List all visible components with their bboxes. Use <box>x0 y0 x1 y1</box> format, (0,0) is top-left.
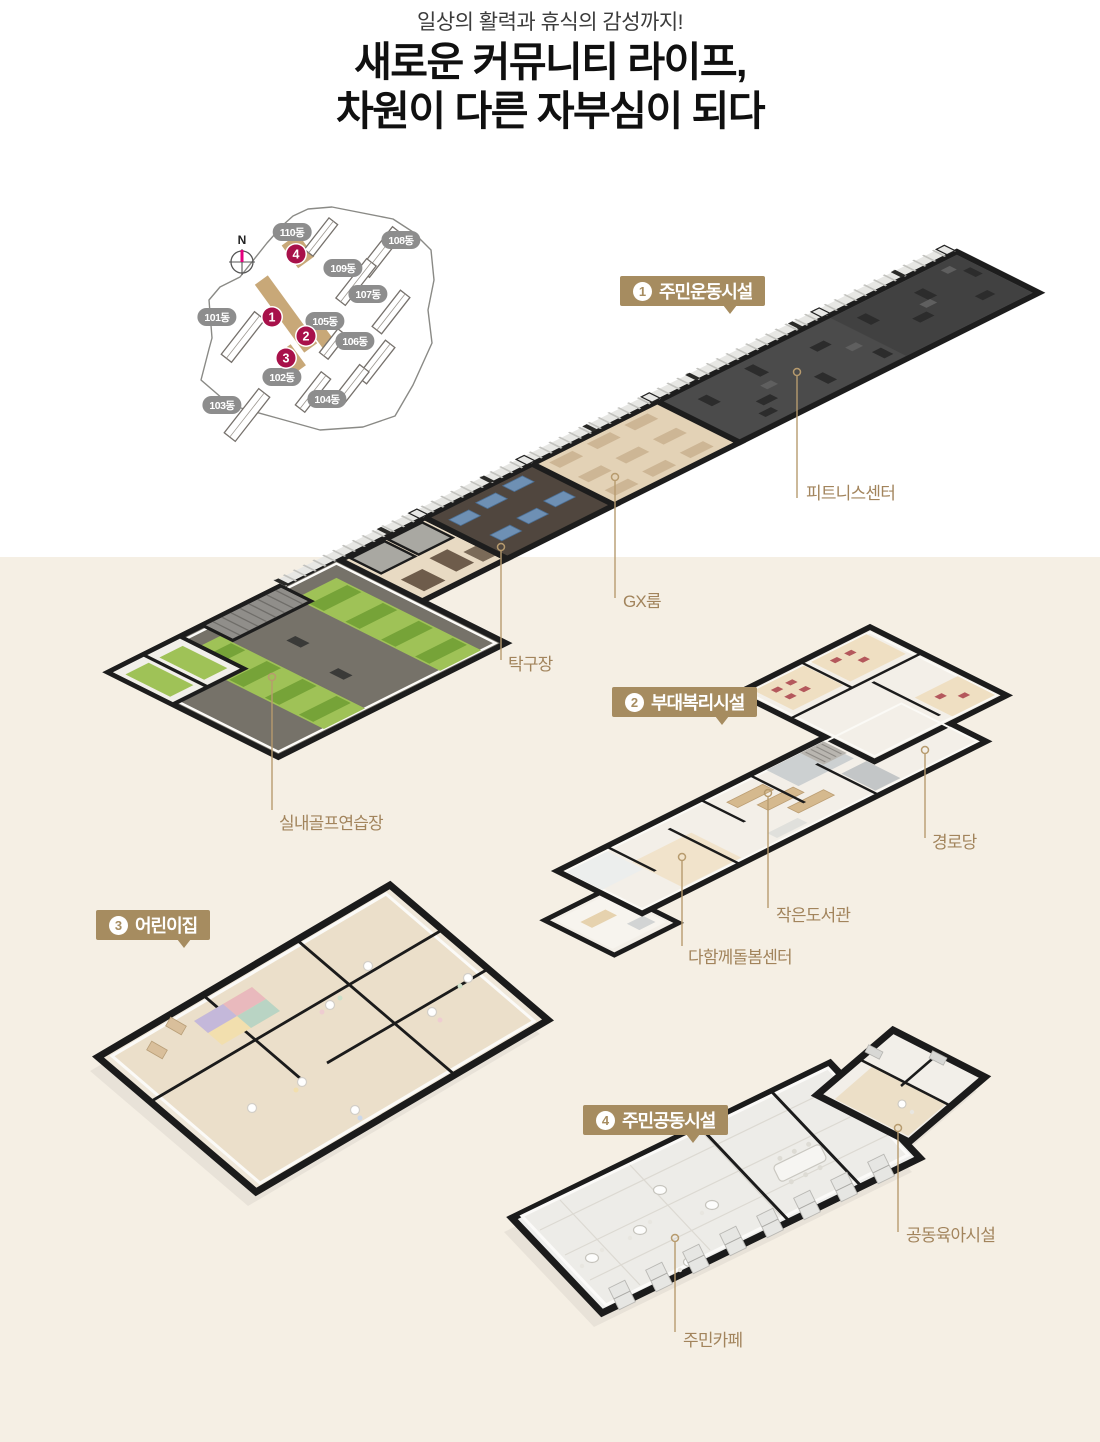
building-pill-106: 106동 <box>335 332 374 350</box>
building-pill-108: 108동 <box>381 231 420 249</box>
page-title: 새로운 커뮤니티 라이프, 차원이 다른 자부심이 되다 <box>0 38 1100 136</box>
label-resident-cafe: 주민카페 <box>683 1326 742 1351</box>
page-subtitle: 일상의 활력과 휴식의 감성까지! <box>0 6 1100 36</box>
label-table-tennis: 탁구장 <box>508 650 553 675</box>
plan-2-welfare-facility <box>414 627 1070 955</box>
compass-n-label: N <box>238 233 247 247</box>
plan-4-communal-facility <box>504 1030 985 1327</box>
map-marker-4: 4 <box>287 245 306 264</box>
badge-3-label: 어린이집 <box>135 912 197 938</box>
building-pill-110: 110동 <box>273 223 312 241</box>
badge-2-label: 부대복리시설 <box>651 689 744 715</box>
community-facilities-page: 일상의 활력과 휴식의 감성까지! 새로운 커뮤니티 라이프, 차원이 다른 자… <box>0 0 1100 1442</box>
building-pill-101: 101동 <box>197 308 236 326</box>
page-title-line1: 새로운 커뮤니티 라이프, <box>0 38 1100 87</box>
label-senior-hall: 경로당 <box>932 828 977 853</box>
badge-2-number: 2 <box>625 693 644 712</box>
badge-1-label: 주민운동시설 <box>659 278 752 304</box>
label-gx-room: GX룸 <box>623 587 661 612</box>
badge-4-number: 4 <box>596 1111 615 1130</box>
building-pill-104: 104동 <box>307 390 346 408</box>
label-indoor-golf: 실내골프연습장 <box>279 809 383 834</box>
badge-welfare-facility: 2 부대복리시설 <box>612 687 757 717</box>
building-pill-103: 103동 <box>202 396 241 414</box>
badge-1-number: 1 <box>633 282 652 301</box>
badge-daycare: 3 어린이집 <box>96 910 210 940</box>
label-small-library: 작은도서관 <box>776 901 850 926</box>
badge-3-number: 3 <box>109 916 128 935</box>
compass-icon <box>229 249 255 275</box>
badge-exercise-facility: 1 주민운동시설 <box>620 276 765 306</box>
label-care-center: 다함께돌봄센터 <box>688 943 792 968</box>
map-marker-3: 3 <box>277 349 296 368</box>
label-fitness-center: 피트니스센터 <box>806 479 895 504</box>
map-marker-1: 1 <box>263 308 282 327</box>
label-communal-childcare: 공동육아시설 <box>906 1221 995 1246</box>
building-pill-107: 107동 <box>348 285 387 303</box>
building-pill-109: 109동 <box>323 259 362 277</box>
badge-communal-facility: 4 주민공동시설 <box>583 1105 728 1135</box>
map-marker-2: 2 <box>297 327 316 346</box>
page-title-line2: 차원이 다른 자부심이 되다 <box>0 87 1100 136</box>
badge-4-label: 주민공동시설 <box>622 1107 715 1133</box>
building-pill-102: 102동 <box>262 368 301 386</box>
